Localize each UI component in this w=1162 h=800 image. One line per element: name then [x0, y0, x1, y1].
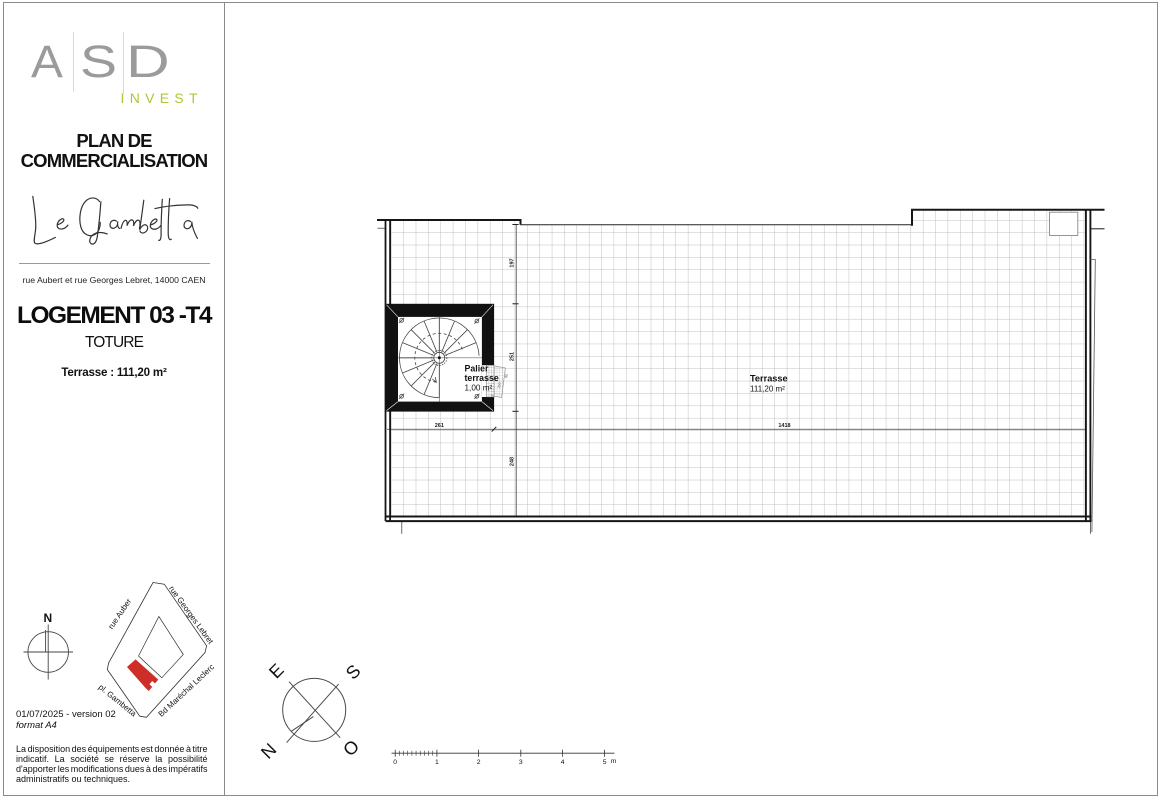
svg-text:248: 248 [510, 457, 516, 466]
svg-text:m: m [611, 758, 617, 765]
svg-text:E: E [265, 660, 288, 683]
svg-text:O: O [339, 736, 363, 760]
svg-text:0: 0 [393, 759, 397, 766]
svg-text:rue Georges Lebret: rue Georges Lebret [167, 584, 216, 646]
svg-text:3: 3 [519, 759, 523, 766]
svg-text:Bd Maréchal Leclerc: Bd Maréchal Leclerc [157, 662, 216, 718]
svg-text:1: 1 [435, 759, 439, 766]
svg-text:pl. Gambetta: pl. Gambetta [97, 683, 139, 719]
svg-text:terrasse: terrasse [465, 373, 499, 383]
svg-text:111,20 m²: 111,20 m² [750, 385, 785, 394]
svg-text:N: N [257, 739, 280, 762]
svg-text:261: 261 [435, 423, 444, 429]
svg-text:S: S [342, 661, 365, 684]
svg-text:Terrasse: Terrasse [750, 374, 788, 384]
svg-text:5: 5 [603, 759, 607, 766]
svg-text:Palier: Palier [465, 364, 490, 374]
svg-text:2: 2 [477, 759, 481, 766]
svg-text:N: N [43, 611, 52, 625]
svg-text:1418: 1418 [778, 423, 790, 429]
svg-text:251: 251 [510, 352, 516, 361]
svg-text:1,00 m²: 1,00 m² [465, 384, 493, 393]
svg-text:80: 80 [504, 374, 509, 379]
svg-text:197: 197 [510, 258, 516, 267]
svg-text:4: 4 [561, 759, 565, 766]
